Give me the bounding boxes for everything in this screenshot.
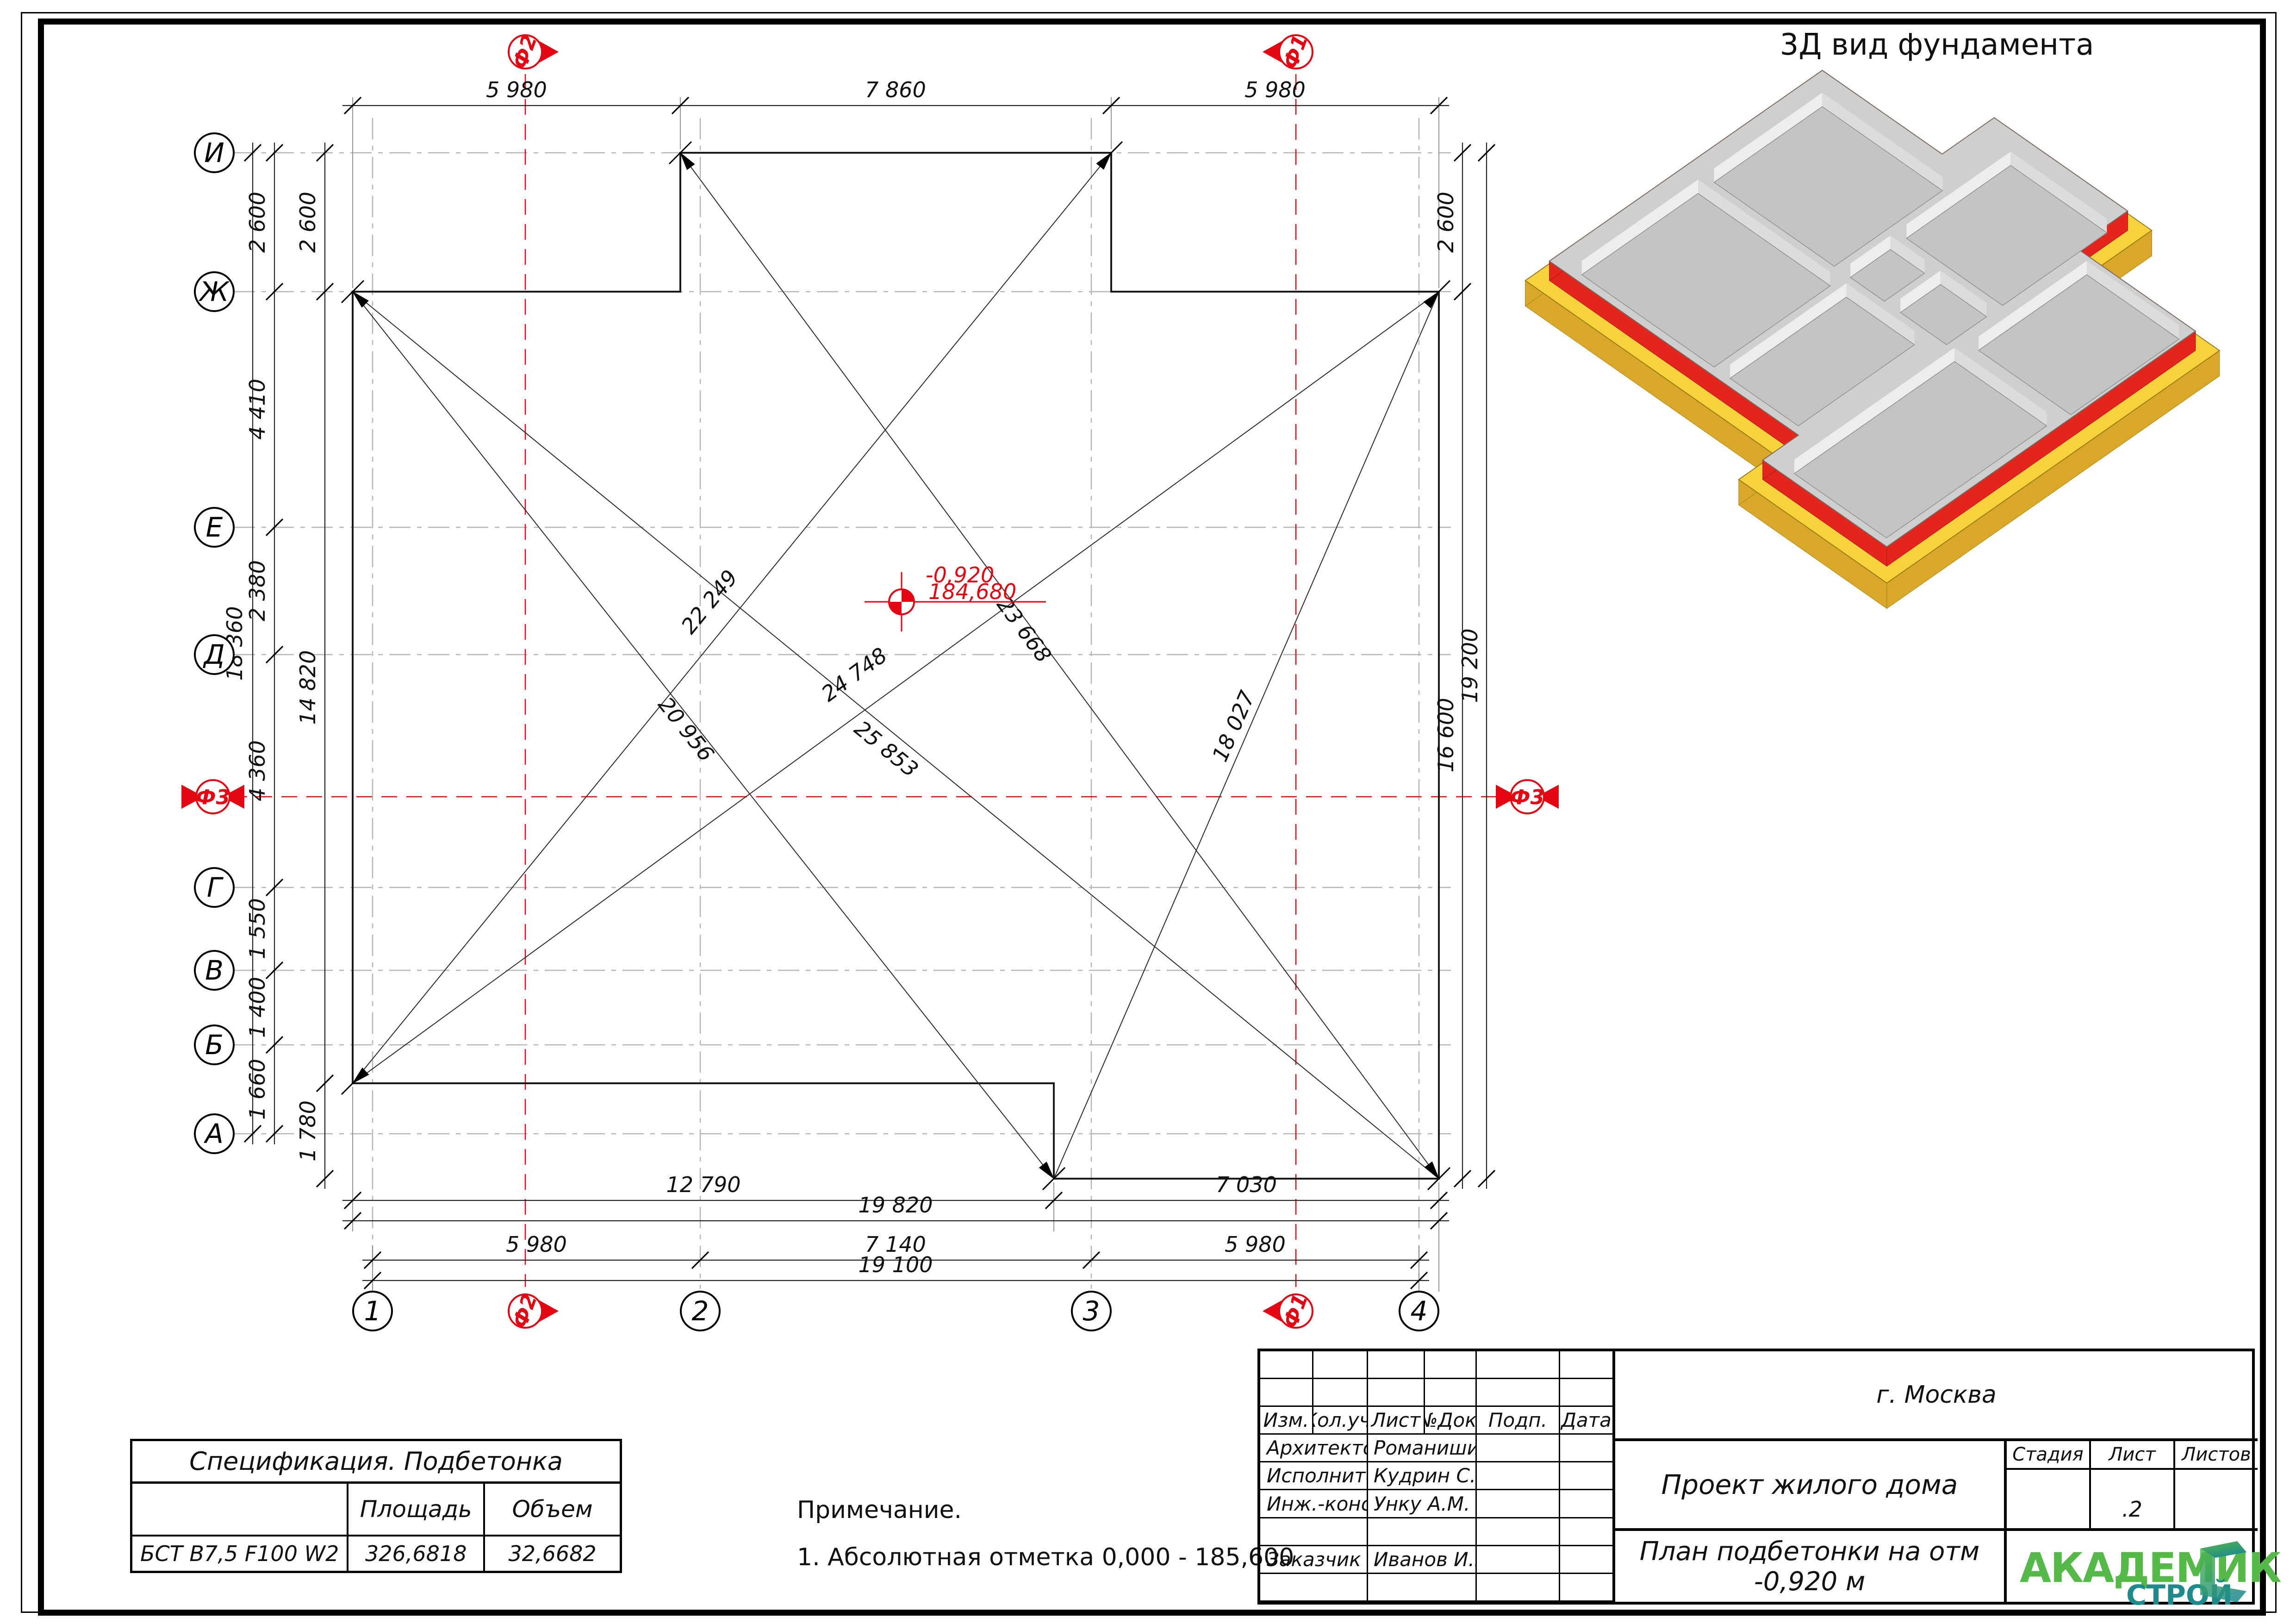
svg-text:5 980: 5 980 [506, 1232, 567, 1257]
corner-markers [342, 142, 1450, 1190]
svg-text:20 956: 20 956 [653, 692, 719, 766]
tb-header-izm: Изм. [1260, 1407, 1313, 1435]
svg-text:2: 2 [692, 1295, 709, 1327]
svg-text:Д: Д [202, 639, 224, 670]
svg-text:И: И [204, 137, 224, 169]
tb-stage-grid: Стадия Лист Листов .2 [2007, 1441, 2258, 1528]
tb-name-executor: Кудрин С.В. [1368, 1462, 1477, 1490]
axis-grid-lines [234, 118, 1451, 1289]
tb-project-title: Проект жилого дома [1615, 1441, 2007, 1528]
svg-text:Ф3: Ф3 [196, 786, 230, 809]
section-marker-bottom-right: Ф1 [1263, 1291, 1313, 1331]
svg-text:2 600: 2 600 [1433, 192, 1458, 253]
spec-table-data-row: БСТ В7,5 F100 W2 326,6818 32,6682 [132, 1535, 620, 1571]
view3d-title: 3Д вид фундамента [1780, 28, 2094, 62]
svg-text:2 600: 2 600 [295, 192, 320, 253]
section-marker-left: Ф3 [181, 780, 244, 813]
svg-text:4 360: 4 360 [245, 740, 270, 801]
note-item: 1. Абсолютная отметка 0,000 - 185,600 [797, 1543, 1294, 1571]
svg-text:19 820: 19 820 [859, 1193, 933, 1218]
witness-lines [353, 97, 1439, 1292]
svg-text:5 980: 5 980 [486, 77, 547, 102]
svg-text:5 980: 5 980 [1225, 1232, 1286, 1257]
svg-text:14 820: 14 820 [295, 650, 320, 725]
dimension-lines [253, 106, 1487, 1280]
svg-text:24 748: 24 748 [817, 643, 892, 706]
note-block: Примечание. 1. Абсолютная отметка 0,000 … [797, 1496, 1294, 1571]
svg-text:Ф1: Ф1 [1279, 31, 1313, 72]
svg-text:Ж: Ж [199, 276, 230, 307]
tb-city: г. Москва [1615, 1351, 2258, 1441]
tb-name-architect: Романишин Д.М [1368, 1435, 1477, 1462]
spec-item-volume: 32,6682 [483, 1537, 620, 1571]
tb-role-architect: Архитектор [1260, 1435, 1368, 1462]
title-block: Изм. Кол.уч. Лист №Док. Подп. Дата Архит… [1257, 1349, 2255, 1605]
axis-bubbles-letters: И Ж Е Д Г В Б А [195, 133, 234, 1153]
svg-text:12 790: 12 790 [666, 1172, 741, 1197]
spec-item-name: БСТ В7,5 F100 W2 [132, 1537, 347, 1571]
company-logo: АКАДЕМИК СТРОЙ [2007, 1531, 2258, 1602]
tb-role-customer: Заказчик [1260, 1546, 1368, 1574]
svg-text:4 410: 4 410 [245, 379, 270, 440]
tb-header-list: Лист [1368, 1407, 1425, 1435]
spec-header-area: Площадь [347, 1484, 483, 1535]
svg-text:4: 4 [1411, 1295, 1428, 1327]
svg-text:Ф2: Ф2 [508, 31, 542, 72]
svg-text:5 980: 5 980 [1244, 77, 1306, 102]
svg-text:7 860: 7 860 [865, 77, 926, 102]
section-marker-top-left: Ф2 [508, 31, 559, 72]
section-cut-lines [231, 74, 1510, 1287]
spec-table: Спецификация. Подбетонка Площадь Объем Б… [130, 1439, 622, 1573]
tb-sheets-value [2175, 1470, 2258, 1528]
dimension-ticks [244, 97, 1495, 1289]
tb-header-data: Дата [1560, 1407, 1612, 1435]
tb-sheet-value: .2 [2091, 1470, 2175, 1528]
svg-text:1 400: 1 400 [245, 977, 270, 1038]
tb-header-kol: Кол.уч. [1313, 1407, 1368, 1435]
tb-doc-title: План подбетонки на отм -0,920 м [1615, 1531, 2007, 1602]
tb-sheets-label: Листов [2175, 1441, 2258, 1468]
tb-header-doc: №Док. [1425, 1407, 1477, 1435]
foundation-outline [353, 153, 1439, 1179]
svg-text:Б: Б [205, 1029, 224, 1061]
tb-role-executor: Исполнитель [1260, 1462, 1368, 1490]
svg-text:1: 1 [364, 1295, 381, 1327]
svg-text:В: В [205, 955, 224, 986]
svg-text:16 600: 16 600 [1433, 698, 1458, 773]
spec-table-header-row: Площадь Объем [132, 1484, 620, 1535]
svg-text:19 200: 19 200 [1457, 629, 1482, 703]
svg-text:2 600: 2 600 [245, 192, 270, 253]
svg-text:2 380: 2 380 [245, 560, 270, 621]
svg-text:1 660: 1 660 [245, 1059, 270, 1120]
section-marker-top-right: Ф1 [1263, 31, 1313, 72]
svg-text:Г: Г [207, 872, 224, 903]
svg-text:1 780: 1 780 [295, 1100, 320, 1162]
svg-text:Е: Е [206, 512, 223, 543]
svg-text:18 027: 18 027 [1207, 687, 1260, 765]
svg-text:Ф3: Ф3 [1510, 786, 1544, 809]
tb-name-engineer: Унку А.М. [1368, 1490, 1477, 1518]
svg-text:Ф1: Ф1 [1279, 1291, 1313, 1331]
spec-header-item [132, 1484, 347, 1535]
svg-text:3: 3 [1083, 1295, 1100, 1327]
logo-mark-icon [2195, 1539, 2250, 1604]
spec-table-title: Спецификация. Подбетонка [132, 1441, 620, 1484]
svg-text:19 100: 19 100 [859, 1252, 933, 1277]
spec-header-volume: Объем [483, 1484, 620, 1535]
svg-text:А: А [203, 1118, 224, 1149]
spec-item-area: 326,6818 [347, 1537, 483, 1571]
tb-stage-label: Стадия [2007, 1441, 2091, 1468]
tb-role-engineer: Инж.-констр. [1260, 1490, 1368, 1518]
tb-header-podp: Подп. [1477, 1407, 1560, 1435]
note-title: Примечание. [797, 1496, 1294, 1524]
svg-text:Ф2: Ф2 [508, 1291, 542, 1331]
title-block-right: г. Москва Проект жилого дома Стадия Лист… [1615, 1351, 2258, 1602]
svg-text:184,680: 184,680 [928, 579, 1016, 604]
title-block-revision-grid: Изм. Кол.уч. Лист №Док. Подп. Дата Архит… [1260, 1351, 1615, 1602]
section-marker-right: Ф3 [1496, 780, 1559, 813]
tb-name-customer: Иванов И.И [1368, 1546, 1477, 1574]
svg-text:1 550: 1 550 [245, 898, 270, 959]
diagonal-lines [353, 153, 1439, 1179]
svg-text:7 030: 7 030 [1216, 1172, 1277, 1197]
section-marker-bottom-left: Ф2 [508, 1291, 559, 1331]
drawing-sheet: 22 249 23 668 24 748 25 853 20 956 18 02… [0, 0, 2296, 1624]
tb-stage-value [2007, 1470, 2091, 1528]
tb-sheet-label: Лист [2091, 1441, 2175, 1468]
view3d-foundation [1525, 70, 2220, 609]
